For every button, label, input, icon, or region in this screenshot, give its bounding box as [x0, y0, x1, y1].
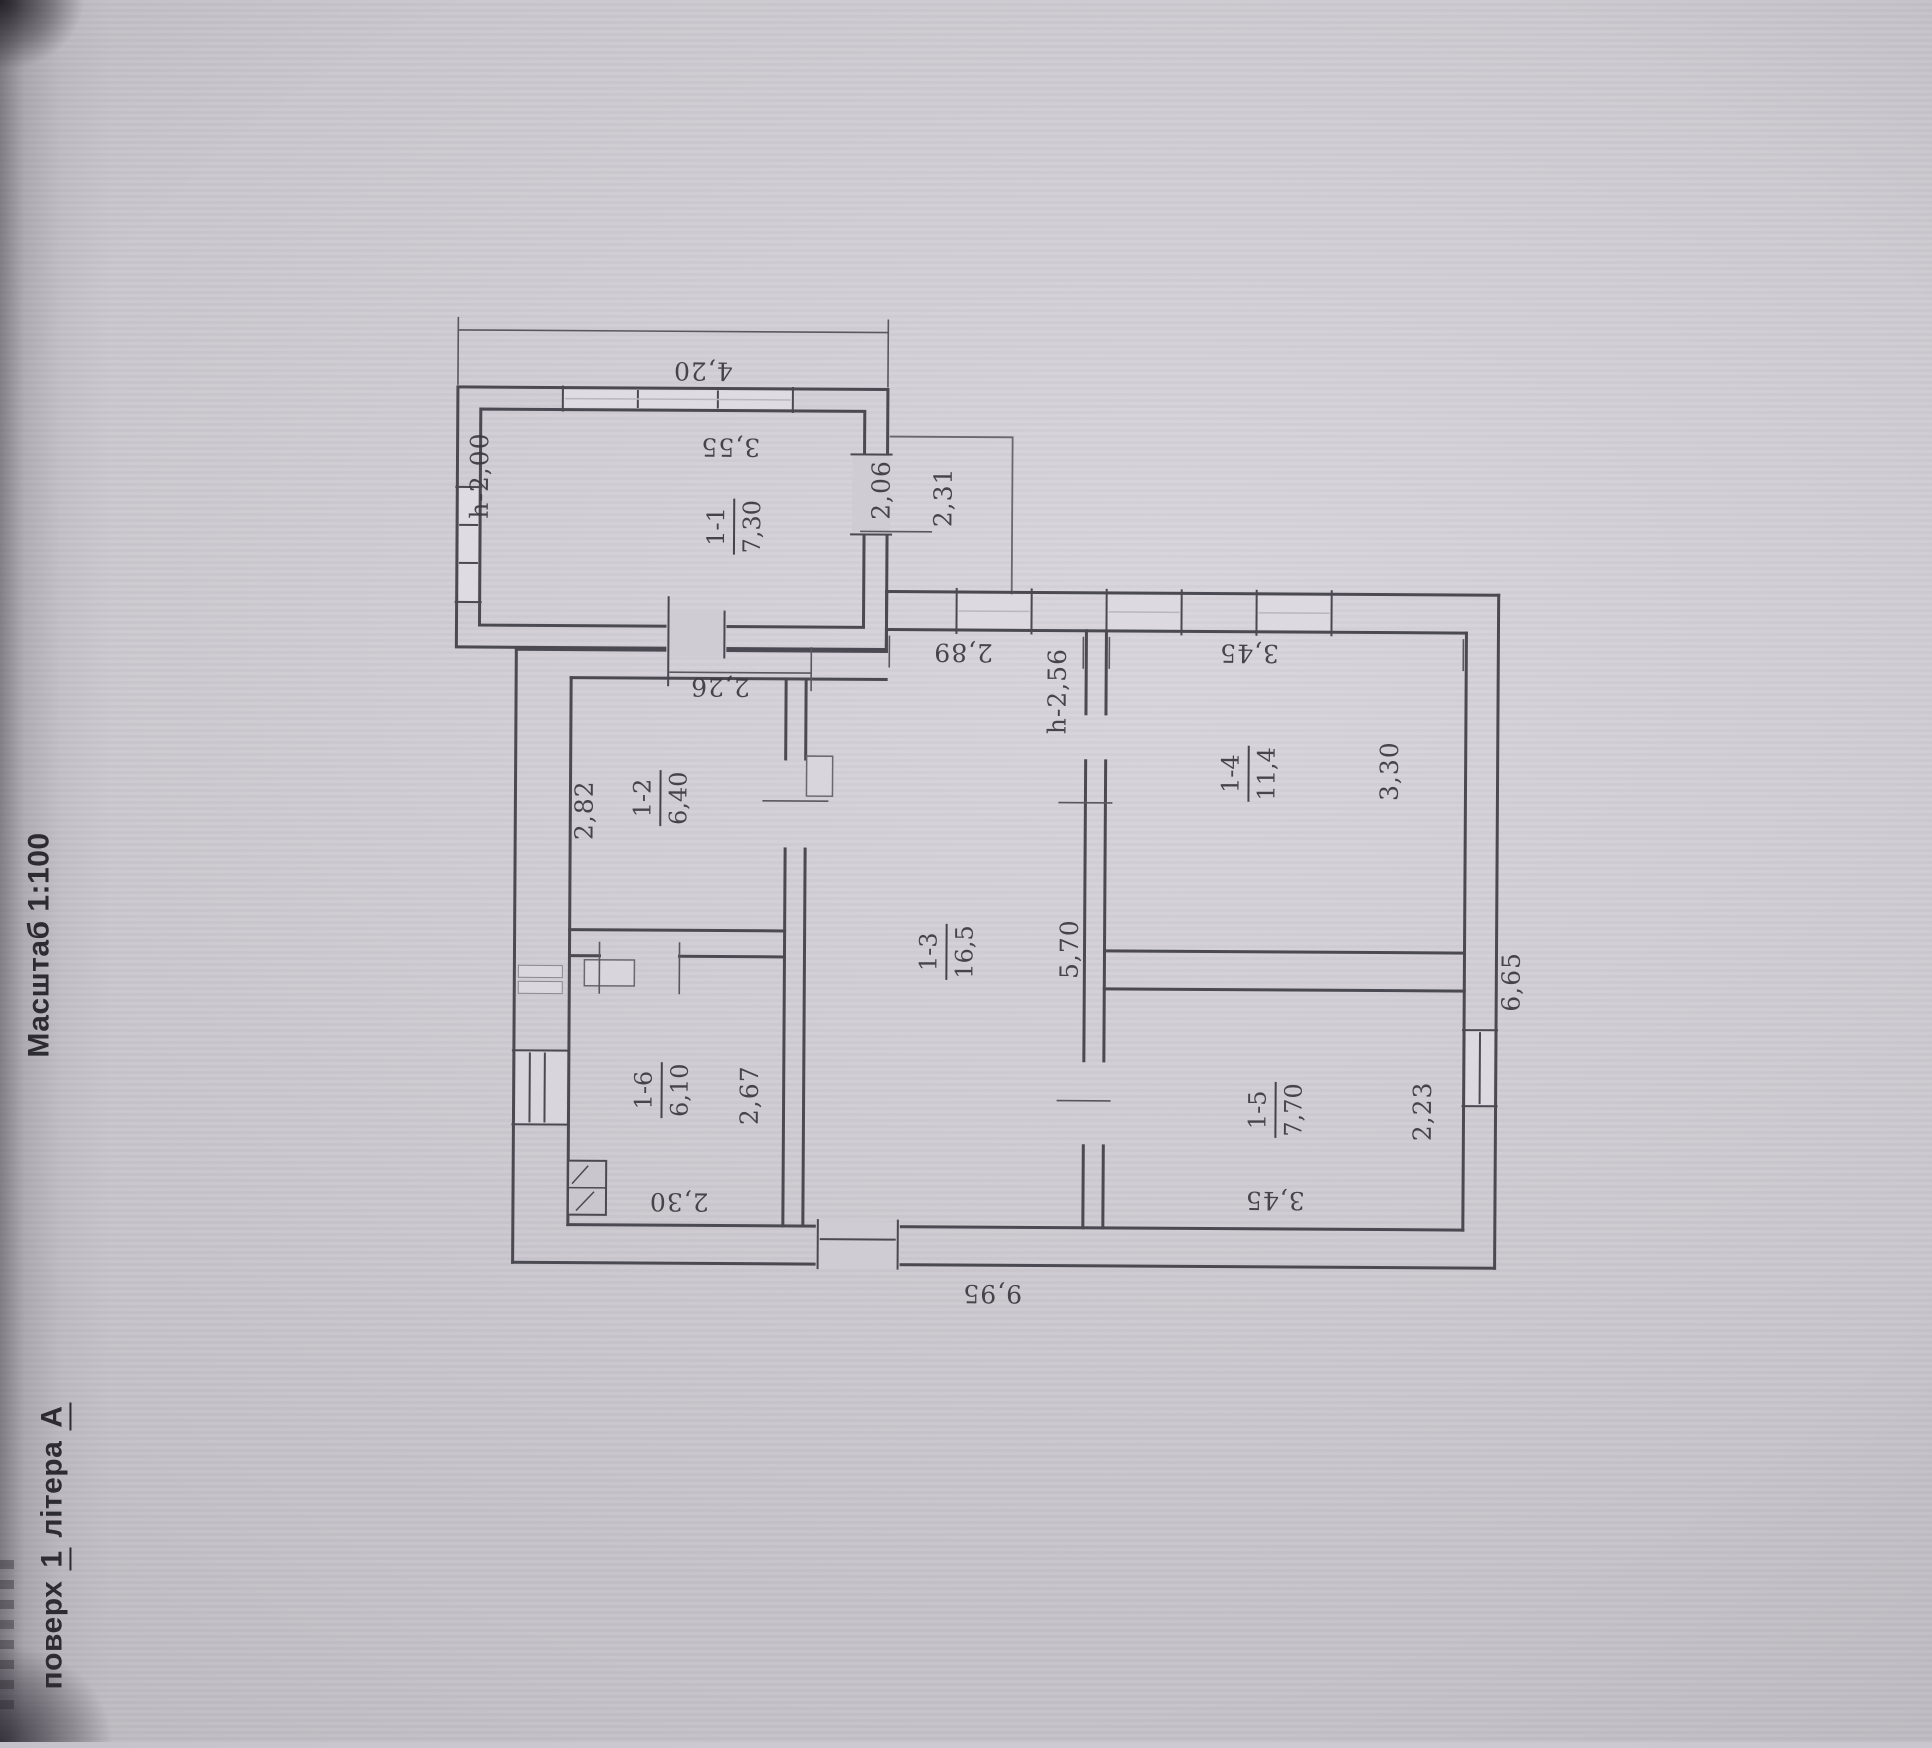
room-1-5-label: 1-57,70: [1225, 1060, 1326, 1161]
room-number: 1-4: [1216, 754, 1244, 793]
room-1-3-label: 1-316,5: [896, 902, 997, 1003]
room-number: 1-3: [914, 932, 942, 971]
room-1-4-label: 1-411,4: [1198, 723, 1299, 824]
door-veranda-to-house: [666, 610, 726, 656]
room-area: 6,10: [665, 1063, 693, 1117]
door-leaf-room13: [806, 756, 832, 796]
dim-line-top-overall: [458, 330, 888, 333]
wall-channel-b: [518, 981, 562, 993]
room-number: 1-6: [630, 1071, 658, 1110]
room-area: 16,5: [950, 925, 978, 979]
floor-plan-svg: [0, 0, 1932, 1748]
stove-symbol: [568, 1161, 606, 1215]
room-area: 7,70: [1279, 1083, 1307, 1137]
windows: [451, 385, 1501, 1130]
window-left-veranda: [459, 487, 479, 602]
wall-channel-a: [518, 965, 562, 977]
room-number: 1-1: [702, 507, 730, 546]
room-area: 11,4: [1252, 747, 1280, 801]
window-left-room16: [515, 1050, 566, 1124]
room-number: 1-2: [628, 779, 656, 818]
door-leaf-room16: [584, 960, 634, 986]
floor-plan: 1-17,30 1-26,40 1-316,5 1-411,4 1-57,70 …: [0, 0, 1932, 1748]
room-area: 6,40: [664, 771, 692, 825]
photographed-floorplan-page: { "header": { "floor_prefix": "поверх", …: [0, 0, 1932, 1742]
room-1-2-label: 1-26,40: [610, 748, 711, 849]
door-back-entrance: [816, 1221, 900, 1270]
room-number: 1-5: [1243, 1090, 1271, 1129]
room-1-1-label: 1-17,30: [684, 476, 785, 577]
porch-outline: [890, 437, 1013, 601]
room-1-6-label: 1-66,10: [611, 1040, 712, 1141]
room-area: 7,30: [738, 500, 766, 554]
door-veranda-to-porch: [852, 454, 890, 534]
